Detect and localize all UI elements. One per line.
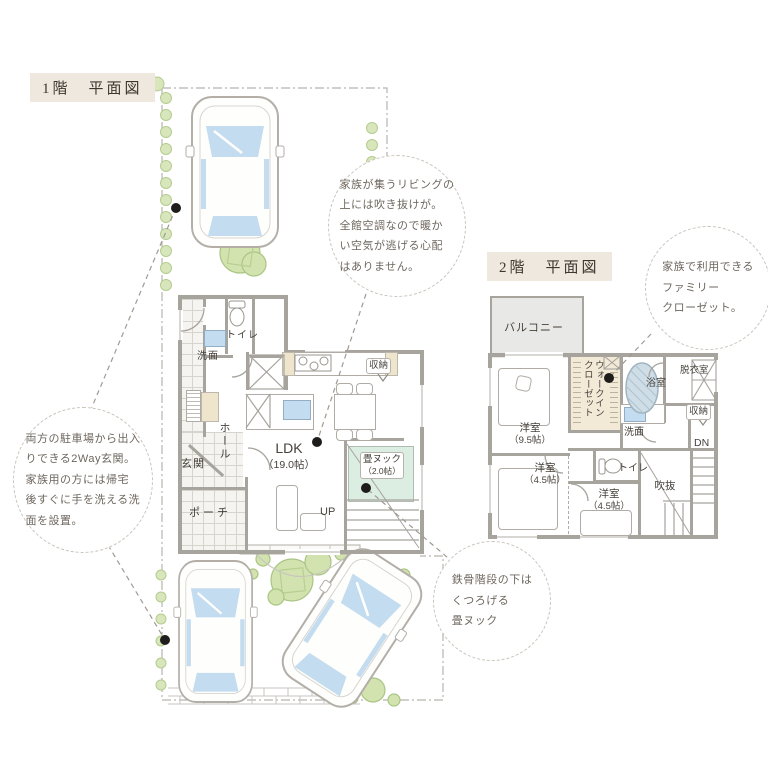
callout-line: 両方の駐車場から出入 — [26, 429, 141, 449]
room-label-void: 吹抜 — [650, 478, 680, 493]
callout-line: ファミリー — [662, 278, 754, 298]
entrance-bench — [201, 392, 219, 422]
callout-line: 家族用の方には帰宅 — [26, 470, 141, 490]
room-label-entrance: 玄関 — [181, 455, 205, 471]
wic-hanger-left — [573, 359, 581, 427]
wic-hanger-right — [610, 372, 618, 427]
room-label-wash-1f: 洗面 — [197, 347, 219, 362]
callout-family-closet: 家族で利用できる ファミリー クローゼット。 — [645, 226, 768, 350]
washbasin-1f — [204, 330, 226, 347]
leader-dot — [171, 203, 181, 213]
callout-line: りできる2Way玄関。 — [26, 449, 141, 469]
window — [487, 465, 493, 513]
callout-line: くつろげる — [452, 591, 533, 611]
window — [285, 549, 340, 555]
island-sink — [283, 400, 311, 420]
window — [177, 310, 183, 340]
car-bottom-left — [174, 561, 257, 702]
car-top-parking — [186, 97, 284, 247]
washbasin-2f — [624, 407, 646, 422]
window — [713, 360, 719, 392]
nook-name: 畳ヌック — [363, 454, 401, 466]
sofa — [276, 485, 298, 531]
nook-size: （2.0帖） — [363, 466, 401, 477]
dining-chair — [336, 383, 353, 395]
window — [419, 385, 425, 427]
room-label-toilet-1f: トイレ — [226, 326, 259, 341]
room-label-ldk: LDK — [258, 440, 320, 456]
bed — [580, 510, 632, 536]
window — [487, 368, 493, 406]
room-label-toilet-2f: トイレ — [618, 459, 648, 474]
dining-chair — [356, 383, 373, 395]
brick-paving — [168, 688, 360, 704]
room-label-bath: 浴室 — [646, 374, 666, 389]
room-label-bed3-size: （4.5帖） — [577, 498, 641, 512]
dining-table — [334, 394, 376, 430]
room-label-ldk-size: （19.0帖） — [252, 457, 326, 472]
room-label-hall: ホール — [216, 422, 232, 480]
floor2-title: 2階 平面図 — [487, 252, 612, 281]
callout-line: 面を設置。 — [26, 511, 141, 531]
callout-steel-stairs-nook: 鉄骨階段の下は くつろげる 畳ヌック — [433, 541, 551, 661]
porch-floor — [181, 490, 245, 550]
window — [497, 534, 537, 540]
callout-line: 家族が集うリビングの — [340, 175, 455, 195]
toilet-icon-1f — [229, 301, 245, 326]
kitchen-end-cabinet — [282, 352, 295, 376]
wic-line1: ウォークイン — [593, 360, 604, 417]
room-label-wic: ウォークインクローゼット — [581, 360, 603, 432]
dining-chair — [336, 429, 353, 441]
room-label-bed1-size: （9.5帖） — [497, 432, 563, 446]
room-label-balcony: バルコニー — [488, 319, 580, 335]
callout-line: 畳ヌック — [452, 611, 533, 631]
callout-line: い空気が逃げる心配 — [340, 236, 455, 256]
callout-twoway-entrance: 両方の駐車場から出入 りできる2Way玄関。 家族用の方には帰宅 後すぐに手を洗… — [13, 407, 153, 553]
car-bottom-right — [270, 538, 434, 717]
stairs-2f — [641, 453, 714, 535]
callout-line: クローゼット。 — [662, 298, 754, 318]
leader-dot — [160, 635, 170, 645]
floorplan-page: トイレ 洗面 ホール 玄関 ポーチ LDK （19.0帖） 収納 畳ヌック （2… — [0, 0, 768, 768]
balcony-door — [505, 352, 563, 358]
stairs-down-label: DN — [694, 437, 709, 449]
callout-line: 後すぐに手を洗える洗 — [26, 490, 141, 510]
stairs-up-label: UP — [320, 506, 335, 518]
callout-living: 家族が集うリビングの 上には吹き抜けが。 全館空調なので暖か い空気が逃げる心配… — [328, 155, 466, 297]
room-label-nook: 畳ヌック （2.0帖） — [360, 452, 404, 479]
room-label-storage-2f: 収納 — [686, 404, 711, 420]
room-label-dressing: 脱衣室 — [680, 362, 709, 376]
wic-line2: クローゼット — [582, 360, 593, 417]
callout-line: 全館空調なので暖か — [340, 216, 455, 236]
leader-twoway-bottom — [108, 545, 165, 640]
callout-line: 上には吹き抜けが。 — [340, 195, 455, 215]
callout-line: はありません。 — [340, 257, 455, 277]
room-label-wash-2f: 洗面 — [624, 423, 644, 438]
entrance-approach-floor — [181, 299, 203, 445]
room-label-porch: ポーチ — [189, 504, 231, 520]
shoe-cabinet — [186, 390, 201, 422]
window — [419, 465, 425, 510]
room-label-storage-1f: 収納 — [366, 358, 391, 374]
callout-line: 鉄骨階段の下は — [452, 570, 533, 590]
callout-line: 家族で利用できる — [662, 257, 754, 277]
leader-twoway-top — [89, 208, 176, 414]
dining-chair — [356, 429, 373, 441]
closet-box — [249, 355, 284, 389]
room-label-bed2-size: （4.5帖） — [513, 472, 577, 486]
floor1-title: 1階 平面図 — [30, 73, 155, 102]
